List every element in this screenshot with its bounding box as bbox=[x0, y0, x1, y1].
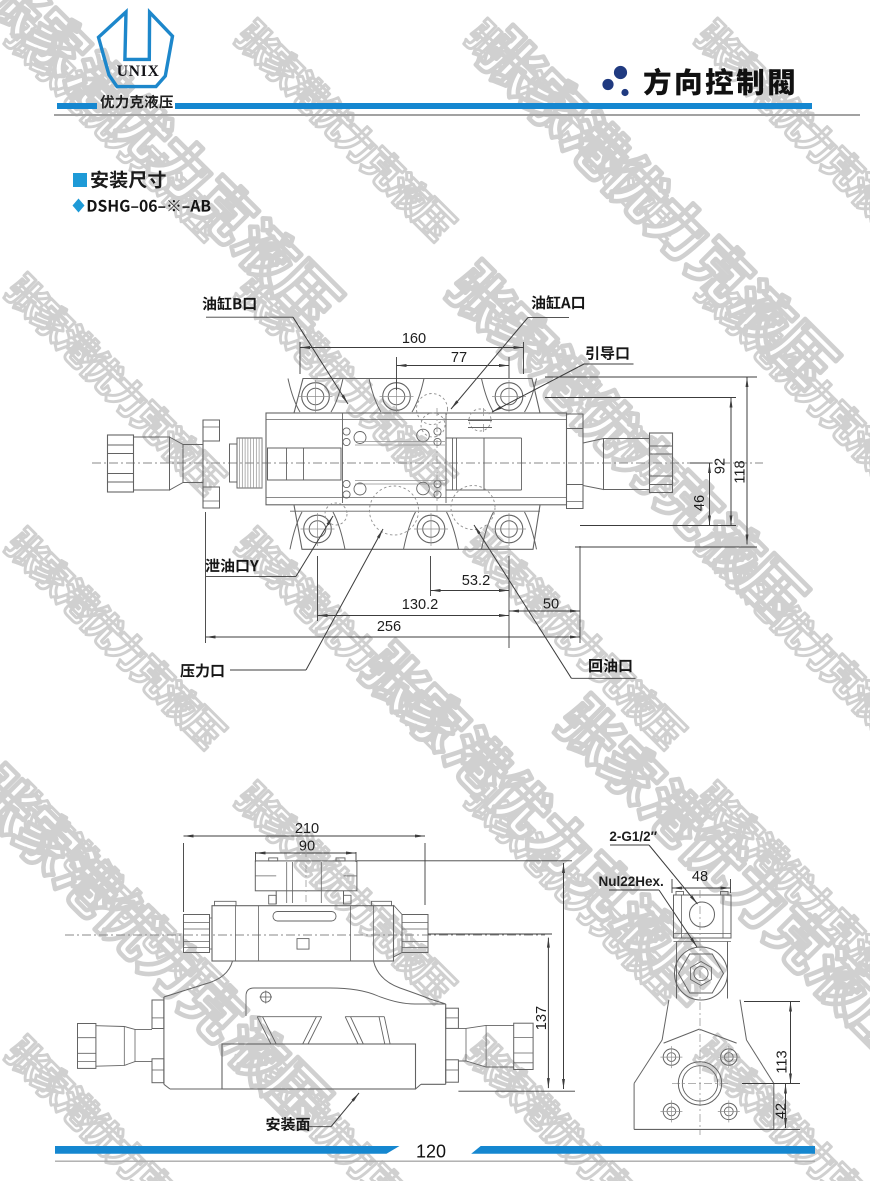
svg-text:113: 113 bbox=[775, 1050, 791, 1073]
svg-text:2-G1/2″: 2-G1/2″ bbox=[609, 829, 657, 844]
svg-text:210: 210 bbox=[295, 821, 319, 837]
svg-text:130.2: 130.2 bbox=[402, 597, 439, 613]
svg-text:92: 92 bbox=[713, 458, 729, 474]
svg-text:Nul22Hex.: Nul22Hex. bbox=[599, 874, 664, 889]
svg-text:48: 48 bbox=[692, 869, 708, 885]
svg-text:53.2: 53.2 bbox=[462, 573, 490, 589]
svg-text:137: 137 bbox=[534, 1006, 550, 1030]
svg-text:77: 77 bbox=[451, 350, 467, 366]
svg-text:256: 256 bbox=[377, 619, 401, 635]
svg-text:42: 42 bbox=[774, 1103, 790, 1119]
svg-text:120: 120 bbox=[416, 1142, 446, 1162]
svg-text:118: 118 bbox=[733, 460, 749, 483]
svg-text:90: 90 bbox=[299, 839, 315, 855]
svg-text:50: 50 bbox=[543, 597, 559, 613]
svg-text:160: 160 bbox=[402, 331, 426, 347]
svg-text:46: 46 bbox=[692, 495, 708, 511]
